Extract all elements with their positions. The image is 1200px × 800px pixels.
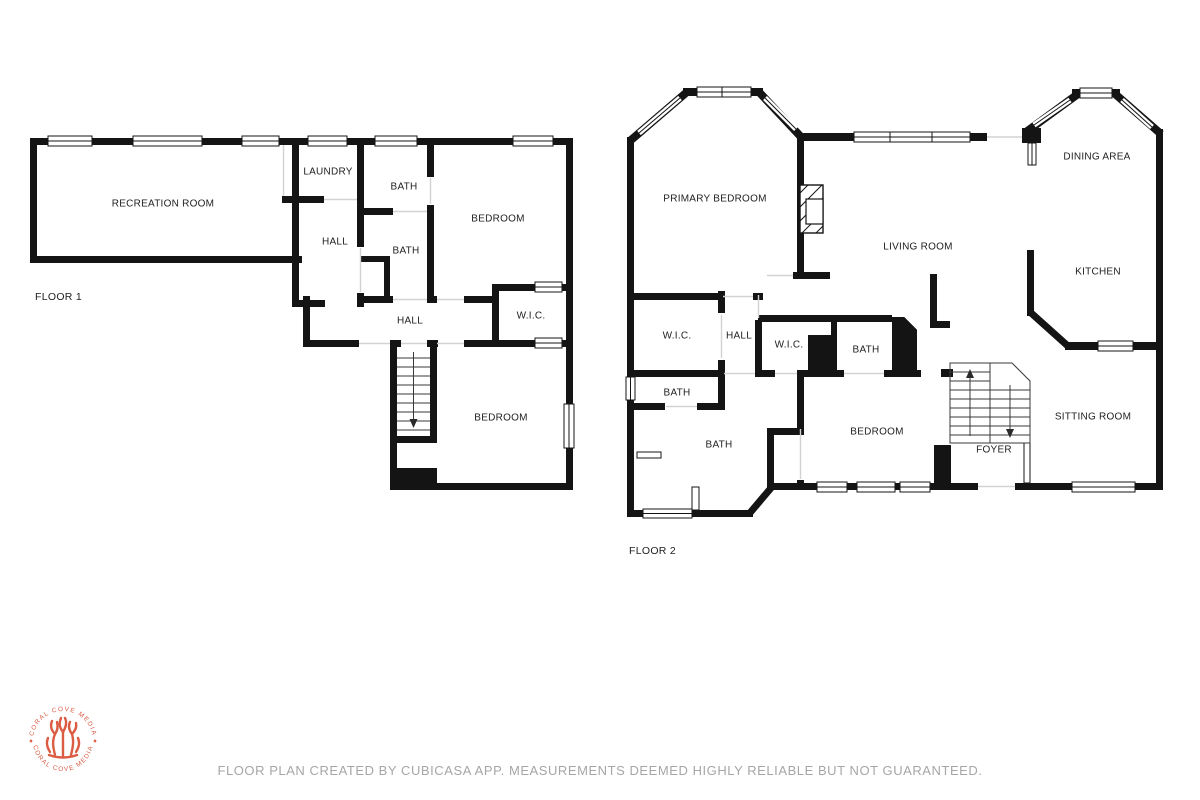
room-label-dining-area: DINING AREA <box>1063 152 1130 163</box>
room-label-sitting-room: SITTING ROOM <box>1055 412 1131 423</box>
floor1-plan <box>30 136 574 490</box>
floor1-title: FLOOR 1 <box>35 291 82 303</box>
room-label-wic-f1: W.I.C. <box>517 311 546 322</box>
stairs-up-arrow-icon <box>966 369 974 378</box>
room-label-hall-f2: HALL <box>726 331 752 342</box>
room-label-living-room: LIVING ROOM <box>883 242 952 253</box>
room-label-primary-bedroom: PRIMARY BEDROOM <box>663 194 766 205</box>
floor2-stairs <box>950 363 1030 443</box>
coral-icon <box>47 718 79 758</box>
room-label-bath-left-f2: BATH <box>664 388 691 399</box>
floor1-walls <box>30 138 573 490</box>
room-label-bath-middle-f1: BATH <box>393 246 420 257</box>
room-label-hall-lower-f1: HALL <box>397 316 423 327</box>
logo-separator-left <box>29 739 32 742</box>
room-label-recreation-room: RECREATION ROOM <box>112 199 214 210</box>
footer-disclaimer: FLOOR PLAN CREATED BY CUBICASA APP. MEAS… <box>0 763 1200 778</box>
room-label-bedroom-lower-f1: BEDROOM <box>474 413 527 424</box>
room-label-bedroom-upper-f1: BEDROOM <box>471 214 524 225</box>
logo-separator-right <box>93 739 96 742</box>
stairs-down-arrow-icon <box>1006 429 1014 438</box>
room-label-bath-upper-f2: BATH <box>853 345 880 356</box>
floor2-title: FLOOR 2 <box>629 545 676 557</box>
room-label-laundry: LAUNDRY <box>303 167 352 178</box>
room-label-bath-top-f1: BATH <box>391 182 418 193</box>
room-label-wic-left-f2: W.I.C. <box>663 331 692 342</box>
room-label-wic-middle-f2: W.I.C. <box>775 340 804 351</box>
floor-plans-canvas <box>0 0 1200 800</box>
stairs-down-arrow-icon <box>410 419 418 428</box>
room-label-foyer: FOYER <box>976 445 1012 456</box>
room-label-hall-upper-f1: HALL <box>322 237 348 248</box>
room-label-bath-lower-f2: BATH <box>706 440 733 451</box>
room-label-kitchen: KITCHEN <box>1075 267 1121 278</box>
floor-plan-page: RECREATION ROOM LAUNDRY HALL BATH BATH B… <box>0 0 1200 800</box>
room-label-bedroom-f2: BEDROOM <box>850 427 903 438</box>
floor1-stairs <box>397 352 430 430</box>
